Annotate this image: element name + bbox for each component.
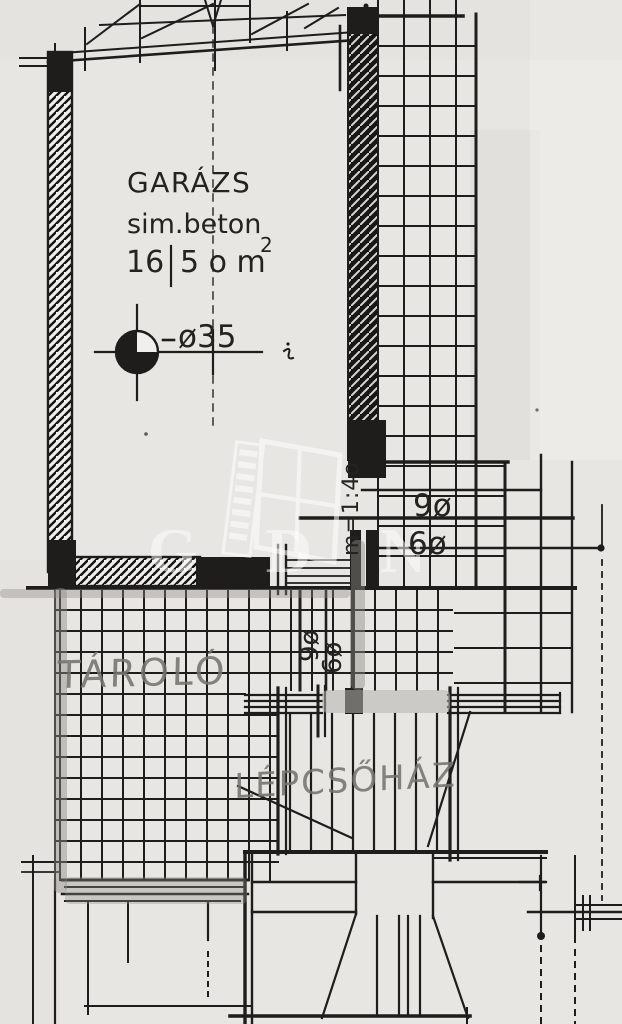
floor-plan-drawing: G D N GARÁZS sim.beton 16 5 o m 2 ø35 m=… <box>0 0 622 1024</box>
garage-area-whole: 16 <box>126 245 164 280</box>
garage-room-name: GARÁZS <box>127 165 251 199</box>
garage-left-wall <box>48 52 72 572</box>
steps-9-label: 9ø <box>413 488 452 524</box>
column-dimension-label: ø35 <box>178 319 236 355</box>
steps-6-label: 6ø <box>408 526 447 562</box>
garage-area-exponent: 2 <box>260 233 273 257</box>
steps-6-side-label: 6ø <box>318 642 348 674</box>
garage-material-label: sim.beton <box>127 209 261 240</box>
garage-area-rest: 5 o m <box>180 245 266 280</box>
scale-label: m=1:4o <box>339 461 364 556</box>
scanned-floor-plan-page: G D N GARÁZS sim.beton 16 5 o m 2 ø35 m=… <box>0 0 622 1024</box>
storage-room-label: TÁROLÓ <box>56 649 228 697</box>
watermark-letters: G D N <box>148 515 452 586</box>
